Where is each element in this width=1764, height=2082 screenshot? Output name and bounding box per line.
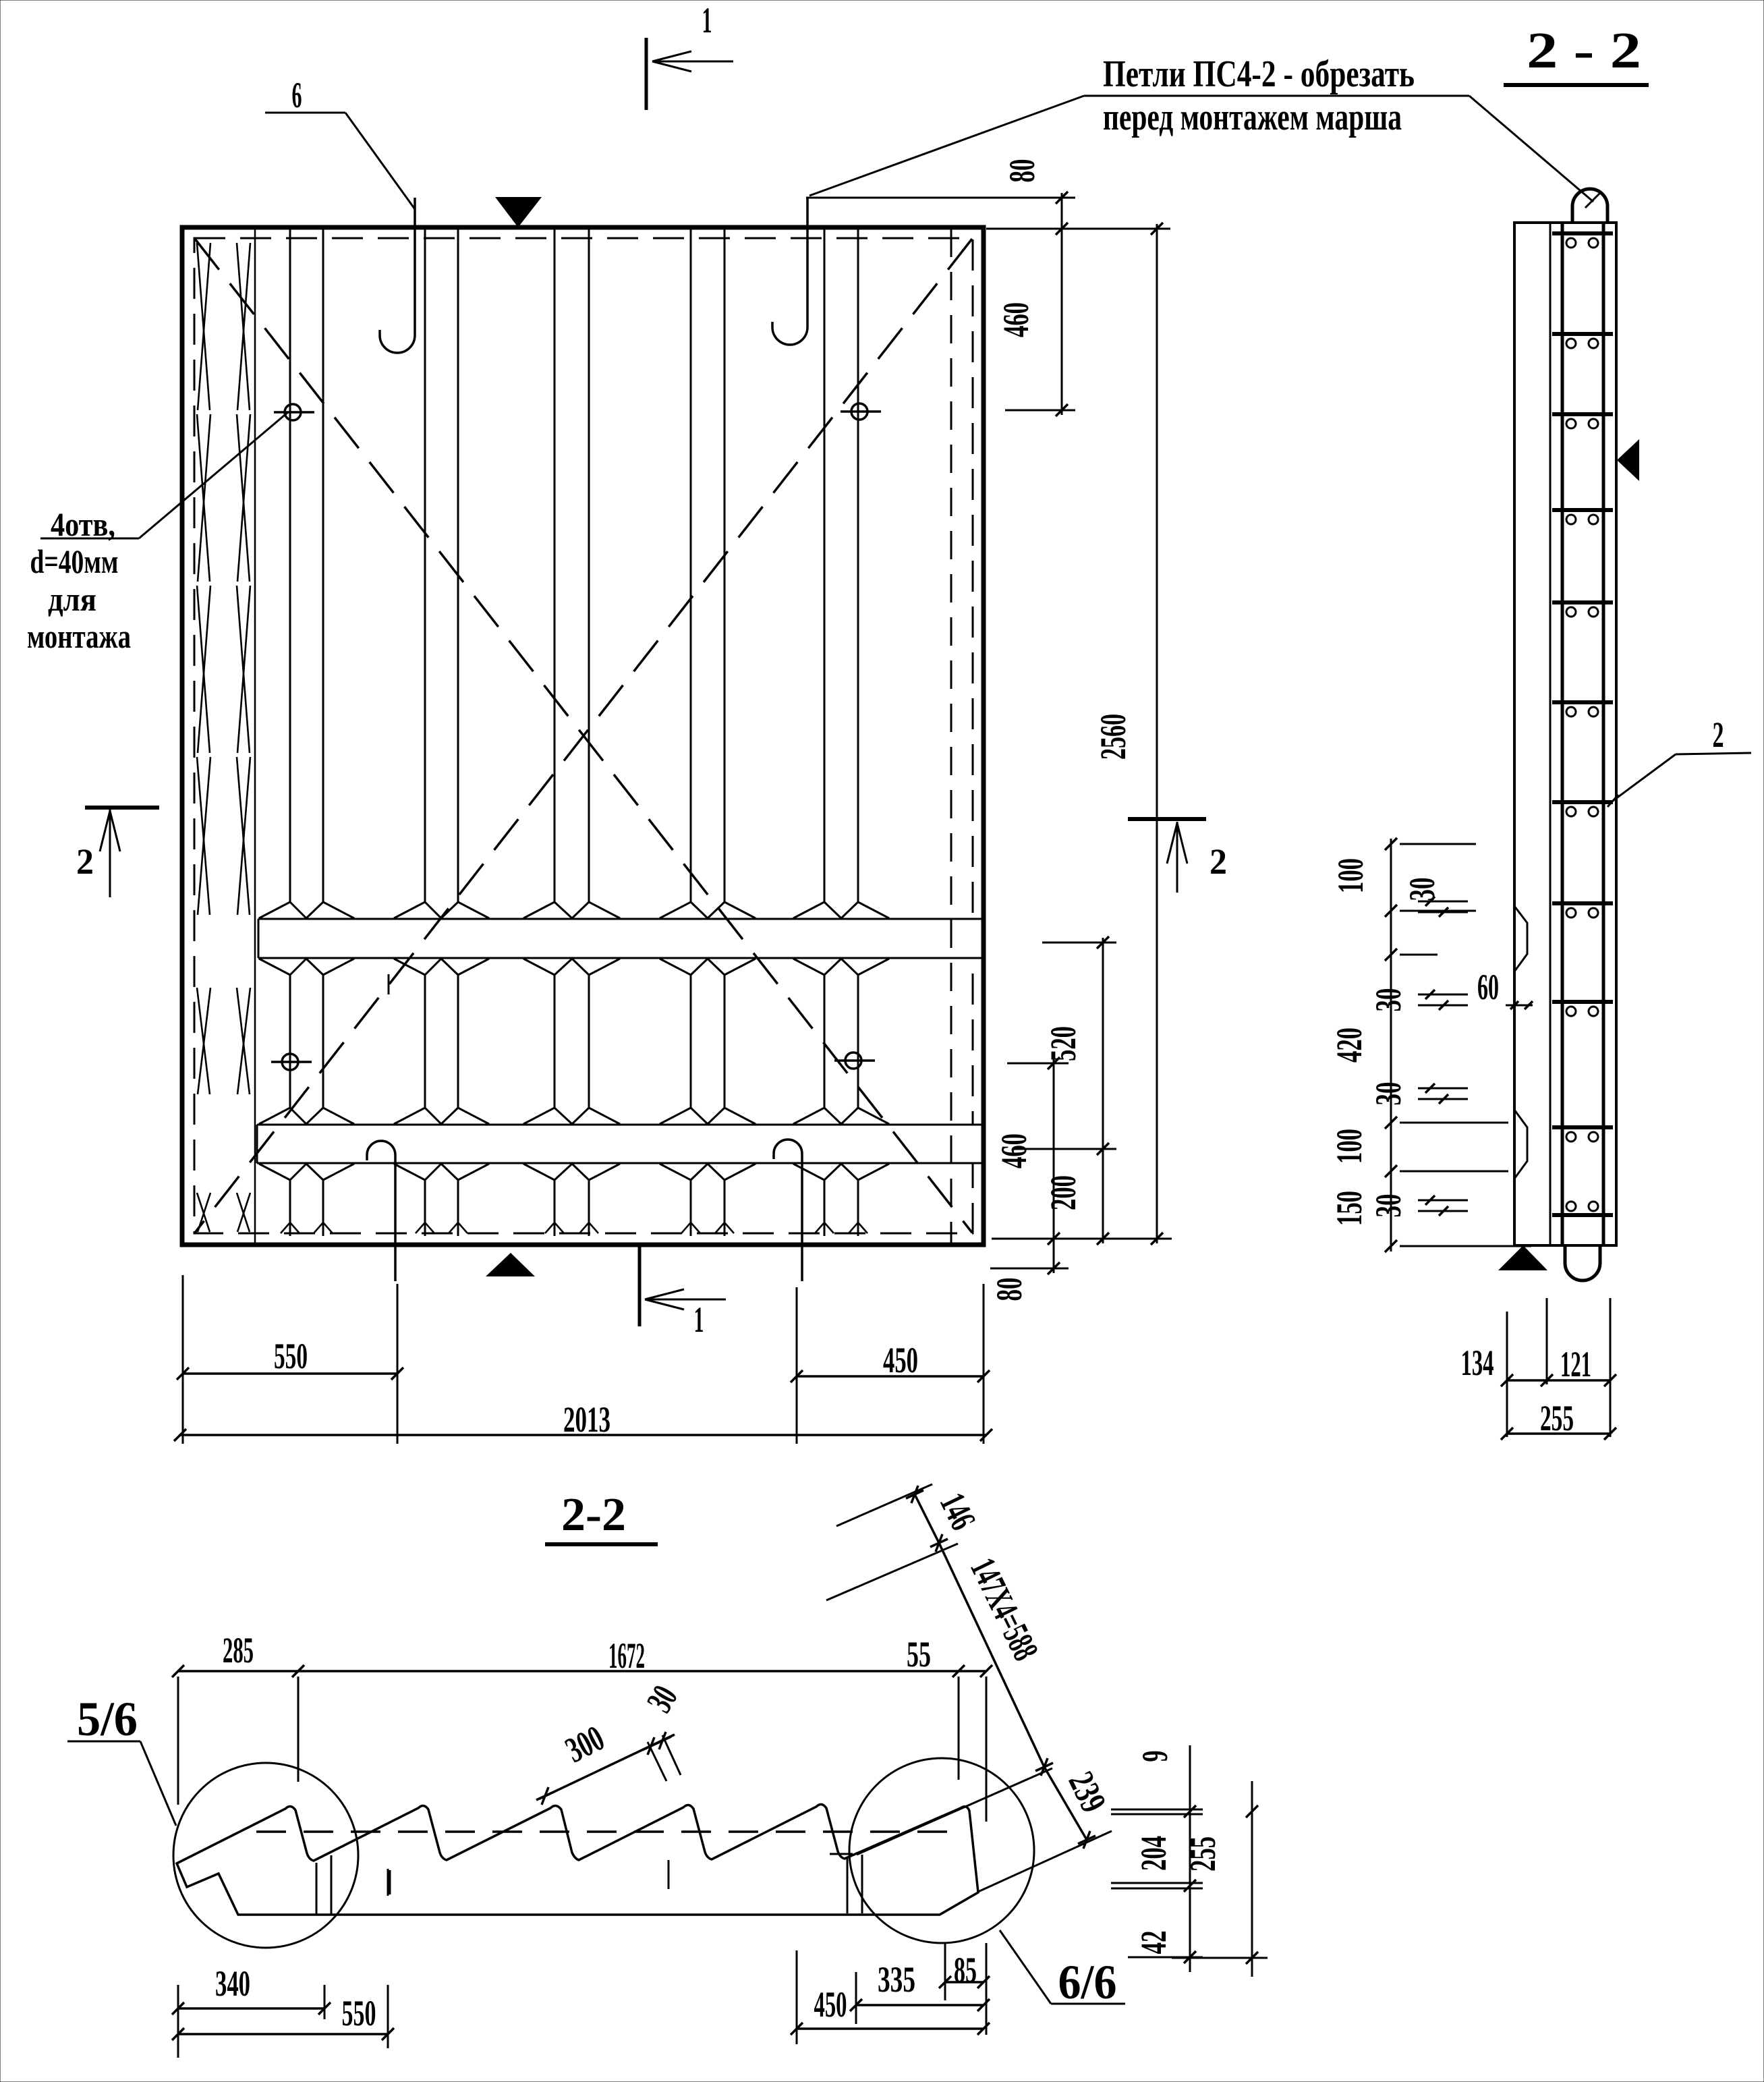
svg-text:100: 100 xyxy=(1329,1129,1369,1164)
svg-text:335: 335 xyxy=(878,1959,915,2000)
svg-text:60: 60 xyxy=(1477,967,1499,1007)
svg-text:2: 2 xyxy=(76,841,94,882)
svg-text:5/6: 5/6 xyxy=(77,1692,138,1746)
svg-text:80: 80 xyxy=(989,1278,1029,1301)
svg-text:1672: 1672 xyxy=(608,1635,645,1676)
svg-text:80: 80 xyxy=(1002,159,1042,183)
svg-text:монтажа: монтажа xyxy=(27,617,131,655)
svg-text:134: 134 xyxy=(1461,1343,1494,1383)
svg-text:для: для xyxy=(48,580,96,618)
svg-text:204: 204 xyxy=(1133,1836,1174,1871)
svg-text:2 - 2: 2 - 2 xyxy=(1527,22,1641,79)
svg-text:Петли ПС4-2 - обрезать: Петли ПС4-2 - обрезать xyxy=(1103,53,1415,95)
svg-text:520: 520 xyxy=(1043,1026,1083,1061)
svg-text:9: 9 xyxy=(1135,1751,1175,1762)
svg-text:6: 6 xyxy=(292,75,302,115)
svg-text:550: 550 xyxy=(274,1336,308,1376)
svg-text:450: 450 xyxy=(883,1340,918,1380)
svg-text:285: 285 xyxy=(223,1630,254,1670)
svg-text:30: 30 xyxy=(1368,988,1409,1012)
svg-text:1: 1 xyxy=(694,1299,704,1340)
svg-text:30: 30 xyxy=(1368,1082,1409,1106)
svg-text:450: 450 xyxy=(814,1984,847,2025)
svg-text:460: 460 xyxy=(996,302,1036,337)
svg-text:255: 255 xyxy=(1183,1836,1223,1872)
svg-text:85: 85 xyxy=(954,1950,977,1990)
svg-text:перед монтажем марша: перед монтажем марша xyxy=(1103,96,1402,138)
svg-text:200: 200 xyxy=(1043,1175,1083,1210)
svg-text:2: 2 xyxy=(1210,841,1227,882)
svg-text:55: 55 xyxy=(907,1634,931,1675)
svg-text:100: 100 xyxy=(1330,858,1371,893)
svg-text:2: 2 xyxy=(1713,714,1724,755)
svg-text:2013: 2013 xyxy=(563,1399,610,1440)
svg-text:30: 30 xyxy=(1402,878,1442,901)
svg-text:550: 550 xyxy=(342,1993,376,2033)
svg-text:460: 460 xyxy=(994,1133,1034,1169)
svg-text:1: 1 xyxy=(702,0,712,40)
svg-text:2-2: 2-2 xyxy=(561,1489,626,1541)
svg-text:42: 42 xyxy=(1133,1931,1174,1954)
svg-text:150: 150 xyxy=(1329,1191,1369,1226)
svg-text:2560: 2560 xyxy=(1093,714,1133,760)
svg-text:340: 340 xyxy=(215,1963,250,2004)
svg-text:30: 30 xyxy=(1368,1194,1409,1218)
svg-text:121: 121 xyxy=(1560,1344,1591,1384)
svg-text:420: 420 xyxy=(1329,1028,1369,1063)
svg-text:d=40мм: d=40мм xyxy=(30,542,119,580)
svg-text:6/6: 6/6 xyxy=(1058,1955,1117,2009)
svg-text:255: 255 xyxy=(1540,1398,1574,1438)
